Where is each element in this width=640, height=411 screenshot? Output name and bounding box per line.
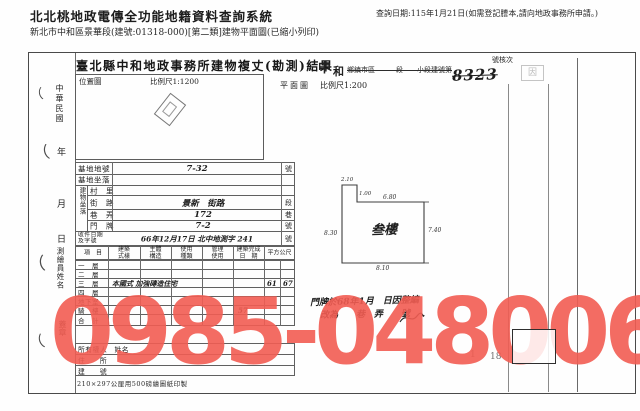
plan-dim-left: 8.30	[324, 230, 337, 237]
row-value: 景新 街路	[128, 197, 278, 209]
col-header: 建築完成 日 期	[234, 246, 263, 260]
row-suffix: 段	[285, 198, 292, 208]
row-label: 巷 弄	[90, 210, 114, 221]
margin-year-label: 年	[57, 145, 66, 158]
row-label: 基地坐落	[78, 175, 110, 186]
row-value: 172	[128, 210, 278, 220]
township-char: 和	[333, 63, 344, 79]
table-row-receipt: 收件日期 及字號 66年12月17日 北中地測字 241 號	[75, 231, 295, 246]
row-label: 收件日期 及字號	[78, 232, 103, 245]
margin-month-label: 月	[57, 197, 66, 210]
row-suffix: 號	[285, 221, 292, 231]
margin-era-label: 中華民國	[54, 84, 65, 124]
col-header: 項 目	[78, 249, 108, 256]
col-header: 主體 構造	[141, 246, 170, 260]
address-group-label: 建物坐落	[77, 187, 87, 215]
document-subtitle: 新北市中和區景華段(建號:01318-000)[第二類]建物平面圖(已縮小列印)	[30, 25, 319, 38]
col-header: 使用 種類	[172, 246, 201, 260]
label-column-line	[112, 162, 113, 231]
plan-scale: 比例尺1:200	[320, 80, 367, 91]
county-char: 中	[318, 57, 331, 76]
handwritten-mark: （	[26, 249, 46, 276]
plan-dim-bottom: 8.10	[376, 265, 389, 272]
row-value: 66年12月17日 北中地測字 241	[116, 233, 278, 244]
location-map-label: 位置圖	[79, 76, 102, 87]
table-row-street: 街 路 景新 街路 段	[87, 195, 295, 210]
row-value: 7-2	[128, 221, 278, 231]
plan-dim-top-notch: 2.10	[341, 177, 353, 183]
query-date: 查詢日期:115年1月21日(如需登記謄本,請向地政事務所申請。)	[376, 8, 598, 19]
col-header: 建築 式樣	[109, 246, 139, 260]
plan-label: 平面圖	[280, 80, 310, 91]
form-title: 臺北縣中和地政事務所建物複丈(勘測)結果	[76, 57, 333, 74]
location-map-parcel-inner	[162, 101, 177, 117]
system-title: 北北桃地政電傳全功能地籍資料查詢系統	[30, 6, 273, 25]
row-label: 街 路	[90, 197, 114, 208]
row-suffix: 巷	[285, 210, 292, 220]
plan-dim-top: 6.80	[383, 194, 396, 201]
seal-outline-box	[512, 329, 556, 364]
plan-room-label: 叁樓	[371, 219, 398, 239]
plan-dim-right: 7.40	[428, 227, 441, 234]
row-suffix: 號	[285, 234, 292, 244]
row-label: 基地地號	[78, 163, 110, 174]
check-times-label: 號核次	[492, 55, 513, 65]
suffix-column-line	[281, 162, 282, 246]
plan-dim-notch: 1.00	[359, 191, 371, 197]
stamp-box: 因	[521, 65, 544, 81]
row-suffix: 號	[285, 164, 292, 174]
col-header: 管理 使用	[203, 246, 232, 260]
col-header: 平方公尺	[264, 249, 295, 256]
building-number: 8323	[452, 65, 498, 85]
row-label: 門 牌	[90, 221, 114, 232]
section-line: 鄉鎮市區 段 小段建號第	[347, 65, 452, 75]
location-map-scale: 比例尺1:1200	[150, 76, 199, 87]
margin-day-label: 日	[57, 232, 66, 245]
row-value: 7-32	[116, 164, 278, 174]
